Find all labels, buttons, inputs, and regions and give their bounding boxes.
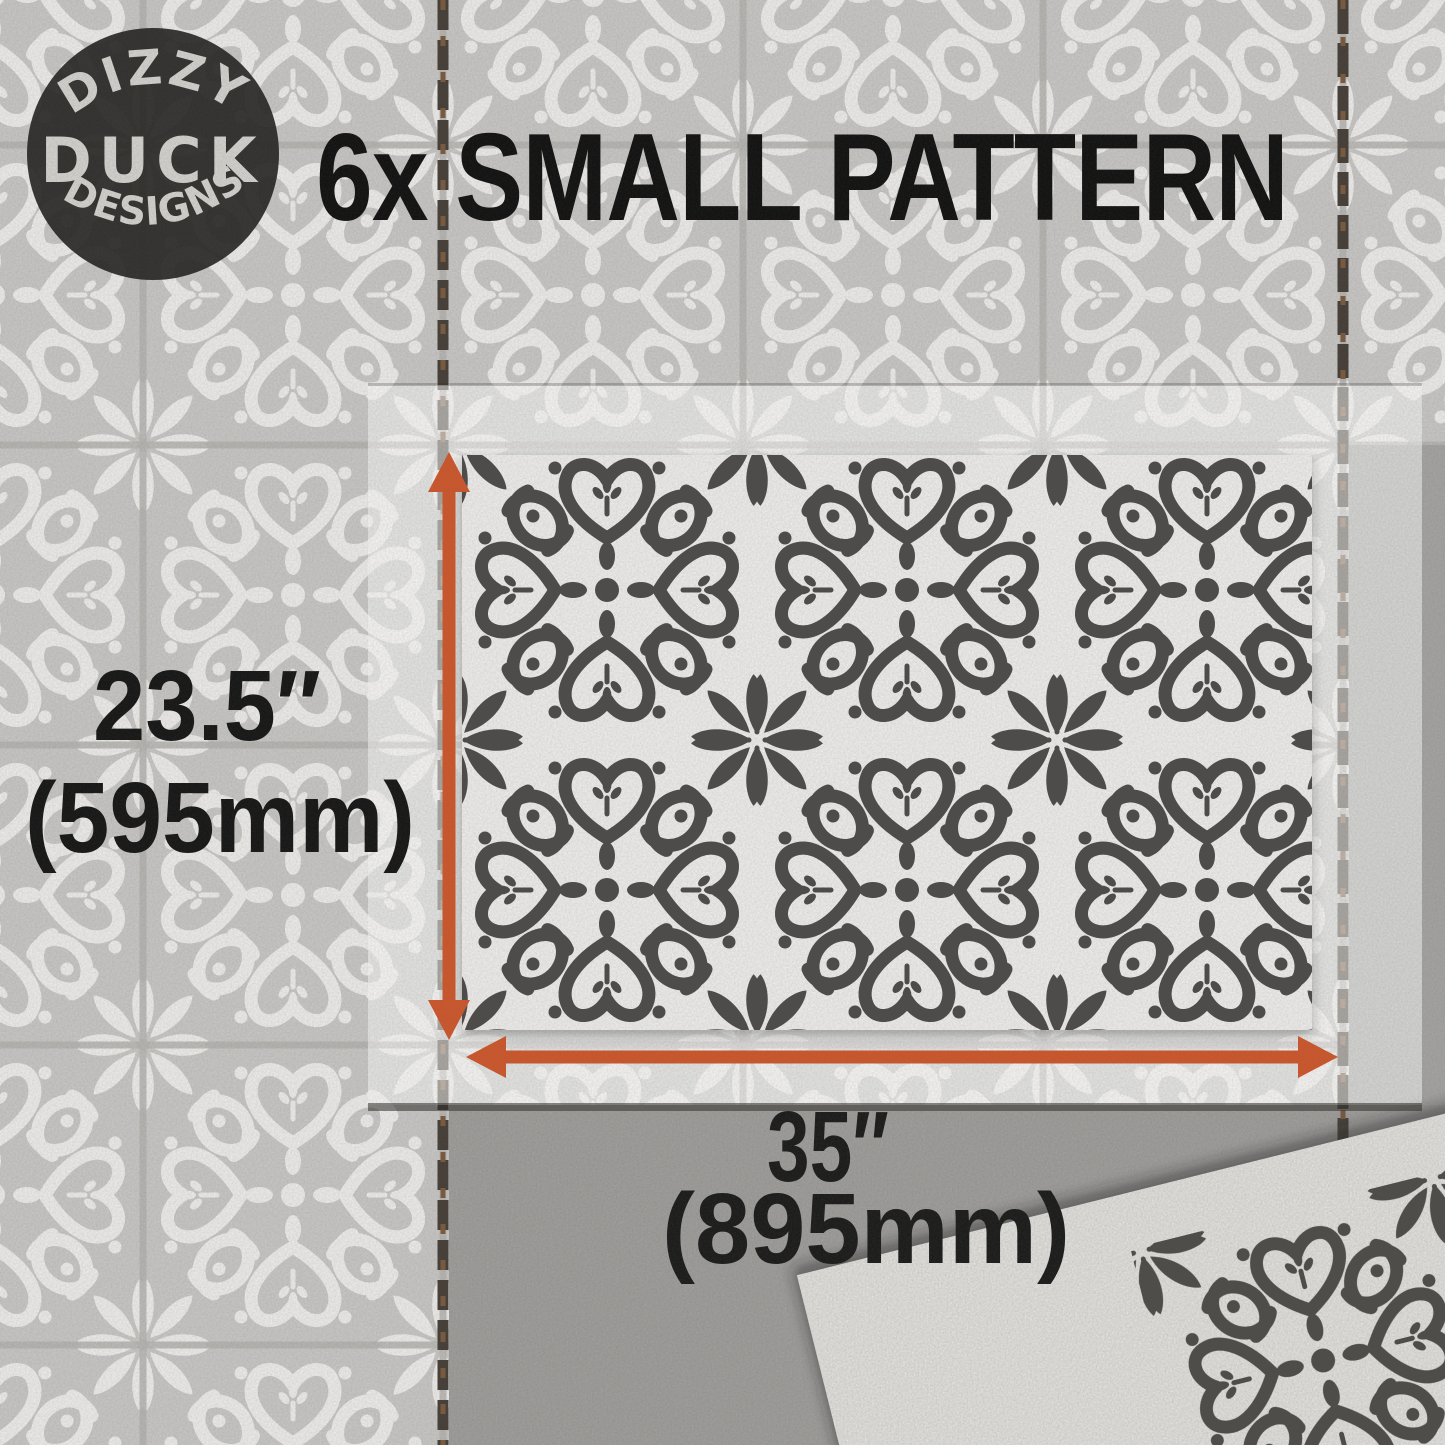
scene: 23.5″ (595mm) 35″ (895mm) 6x SMALL PATTE…	[0, 0, 1445, 1445]
product-dimension-image: 23.5″ (595mm) 35″ (895mm) 6x SMALL PATTE…	[0, 0, 1445, 1445]
grain-texture-plain-area	[449, 1105, 1445, 1445]
